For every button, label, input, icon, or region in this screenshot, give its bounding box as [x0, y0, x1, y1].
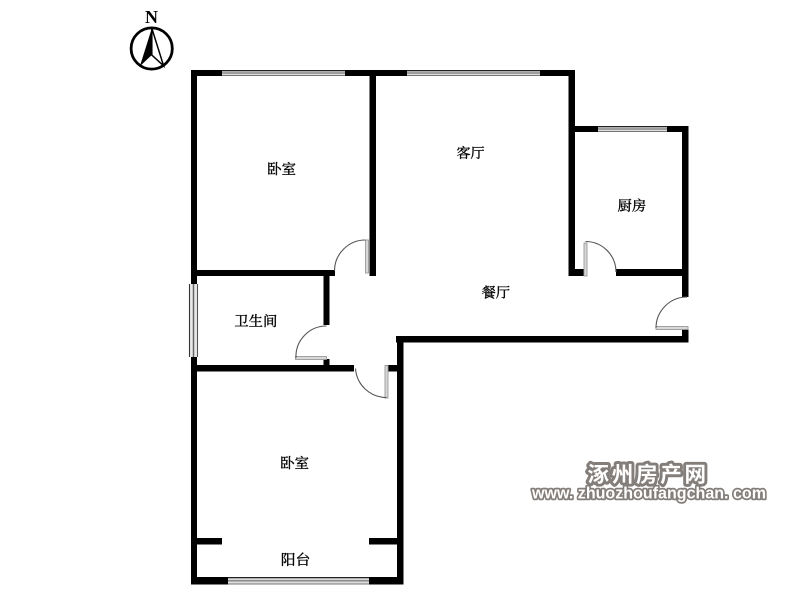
- svg-text:N: N: [145, 7, 158, 27]
